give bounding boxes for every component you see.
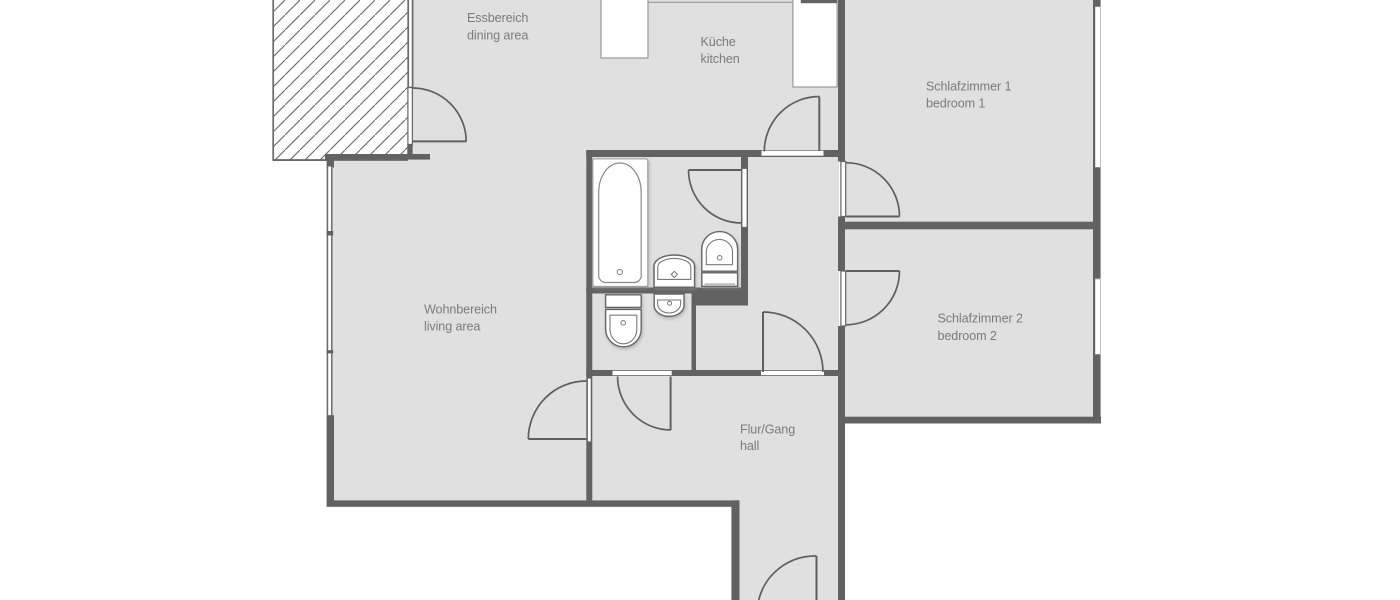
svg-text:Flur/Gang: Flur/Gang: [740, 423, 795, 437]
svg-text:Wohnbereich: Wohnbereich: [424, 303, 497, 317]
svg-text:bedroom 2: bedroom 2: [938, 329, 997, 343]
svg-text:Essbereich: Essbereich: [467, 11, 528, 25]
svg-text:kitchen: kitchen: [701, 52, 740, 66]
svg-text:dining area: dining area: [467, 29, 528, 43]
svg-text:living area: living area: [424, 320, 480, 334]
svg-text:Küche: Küche: [701, 35, 736, 49]
svg-text:Schlafzimmer 2: Schlafzimmer 2: [938, 312, 1023, 326]
svg-text:bedroom 1: bedroom 1: [926, 97, 985, 111]
svg-text:hall: hall: [740, 439, 759, 453]
svg-text:Schlafzimmer 1: Schlafzimmer 1: [926, 80, 1011, 94]
